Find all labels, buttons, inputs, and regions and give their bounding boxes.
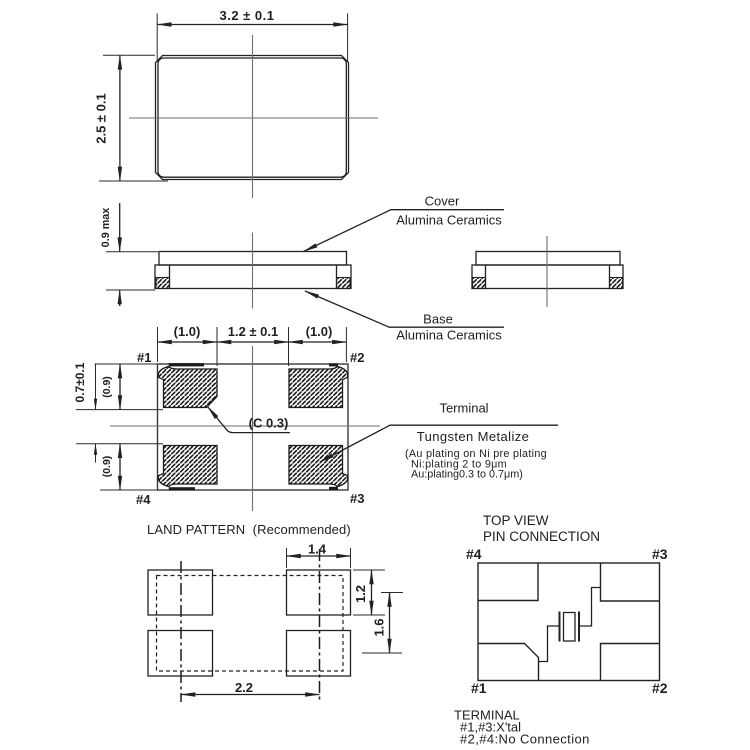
svg-text:1.4: 1.4 bbox=[308, 542, 327, 557]
svg-text:1.2 ± 0.1: 1.2 ± 0.1 bbox=[228, 324, 279, 339]
svg-text:1.6: 1.6 bbox=[372, 618, 387, 636]
svg-text:#3: #3 bbox=[350, 491, 364, 506]
svg-text:Alumina Ceramics: Alumina Ceramics bbox=[396, 328, 502, 343]
svg-text:1.2: 1.2 bbox=[353, 585, 368, 603]
svg-text:(1.0): (1.0) bbox=[306, 324, 333, 339]
svg-text:TOP VIEW: TOP VIEW bbox=[483, 513, 549, 528]
svg-text:#2: #2 bbox=[652, 680, 668, 696]
svg-text:Base: Base bbox=[423, 312, 453, 327]
svg-text:(0.9): (0.9) bbox=[101, 376, 113, 398]
svg-text:LAND PATTERN (Recommended): LAND PATTERN (Recommended) bbox=[147, 522, 351, 537]
svg-text:(1.0): (1.0) bbox=[174, 324, 201, 339]
svg-text:#3: #3 bbox=[652, 546, 668, 562]
svg-text:Tungsten Metalize: Tungsten Metalize bbox=[417, 429, 530, 444]
svg-text:3.2 ± 0.1: 3.2 ± 0.1 bbox=[219, 8, 274, 23]
svg-text:#4: #4 bbox=[136, 492, 151, 507]
svg-text:#1: #1 bbox=[137, 350, 151, 365]
svg-text:2.5 ± 0.1: 2.5 ± 0.1 bbox=[94, 93, 109, 144]
svg-text:#2: #2 bbox=[350, 350, 364, 365]
svg-text:(0.9): (0.9) bbox=[101, 456, 113, 478]
svg-text:0.7±0.1: 0.7±0.1 bbox=[73, 362, 87, 402]
svg-text:Cover: Cover bbox=[425, 194, 460, 209]
svg-text:#2,#4:No Connection: #2,#4:No Connection bbox=[460, 732, 590, 747]
svg-text:Au:plating0.3 to 0.7μm): Au:plating0.3 to 0.7μm) bbox=[411, 469, 523, 481]
svg-text:#1: #1 bbox=[471, 680, 487, 696]
svg-text:(C 0.3): (C 0.3) bbox=[249, 416, 289, 431]
svg-text:#4: #4 bbox=[466, 546, 482, 562]
svg-text:0.9 max: 0.9 max bbox=[100, 208, 112, 248]
svg-text:Alumina Ceramics: Alumina Ceramics bbox=[396, 213, 502, 228]
svg-text:Terminal: Terminal bbox=[439, 401, 488, 416]
svg-text:PIN CONNECTION: PIN CONNECTION bbox=[483, 529, 600, 544]
svg-text:2.2: 2.2 bbox=[235, 680, 253, 695]
